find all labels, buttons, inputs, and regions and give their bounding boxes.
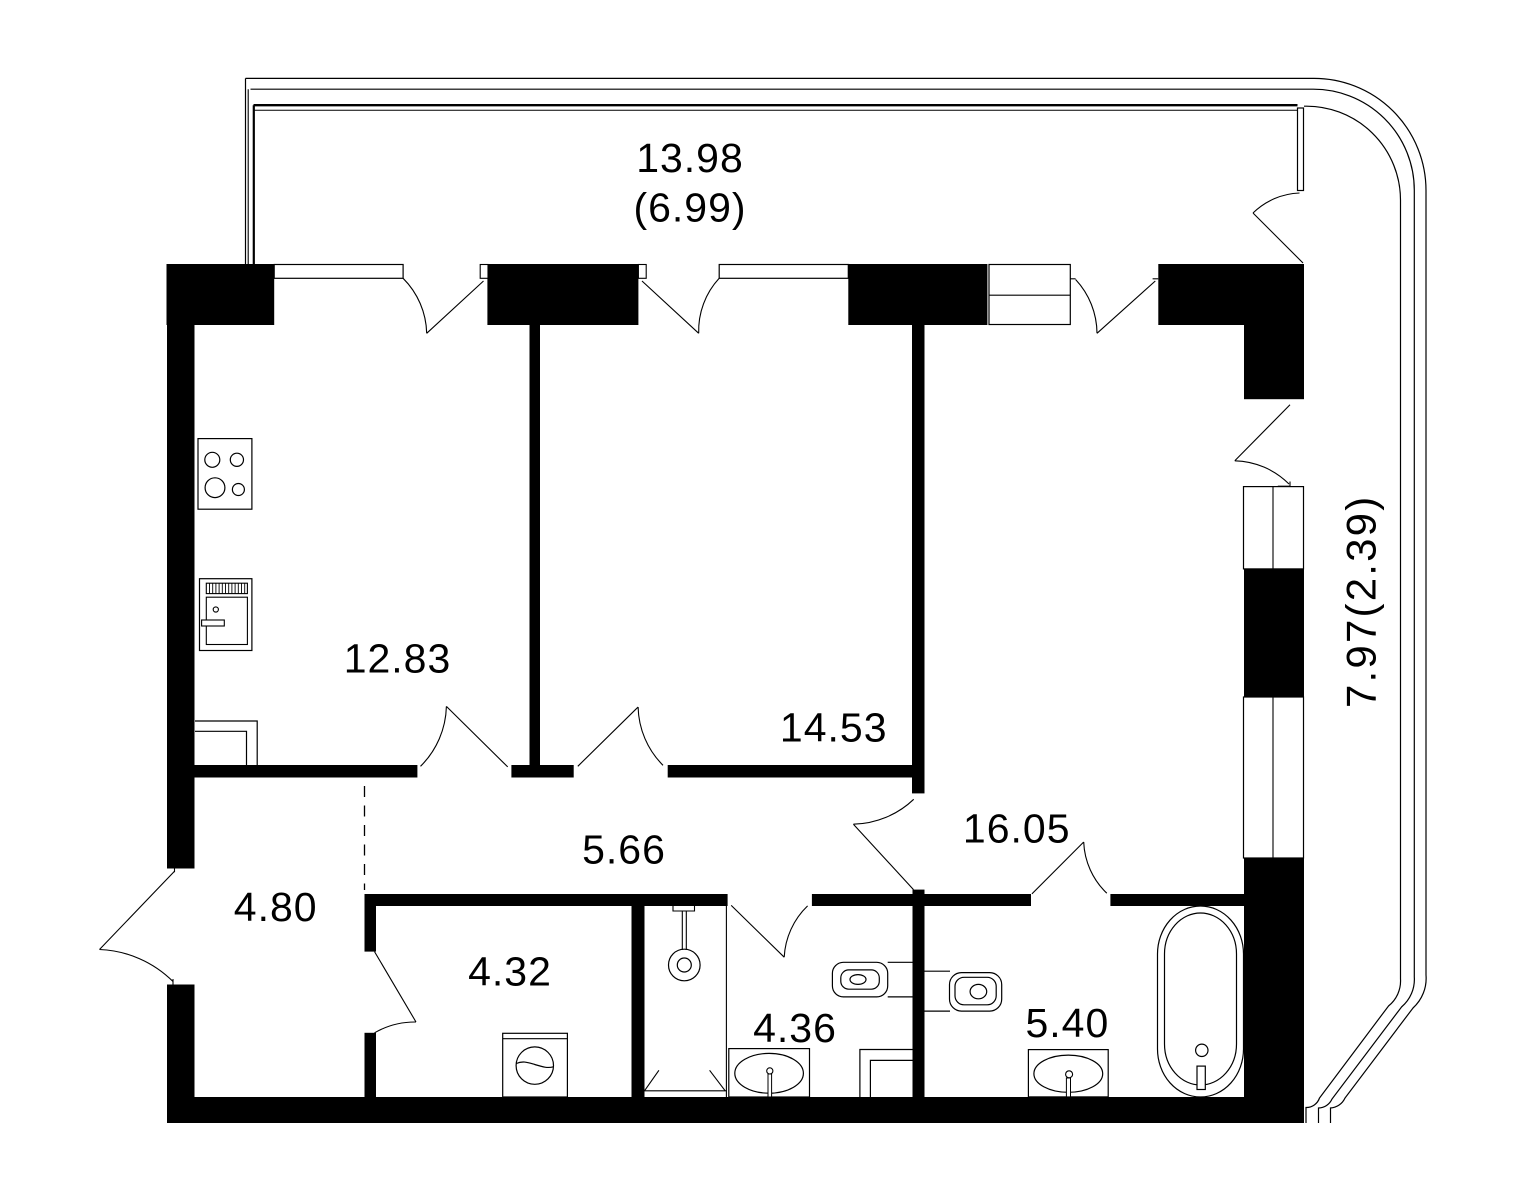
svg-text:5.40: 5.40 <box>1025 1000 1109 1046</box>
svg-text:5.66: 5.66 <box>582 827 666 873</box>
svg-text:4.80: 4.80 <box>234 884 318 930</box>
svg-text:14.53: 14.53 <box>780 704 888 750</box>
svg-text:4.32: 4.32 <box>468 949 552 995</box>
svg-text:4.36: 4.36 <box>753 1005 837 1051</box>
svg-text:7.97(2.39): 7.97(2.39) <box>1338 495 1385 708</box>
svg-text:16.05: 16.05 <box>963 805 1071 851</box>
svg-text:12.83: 12.83 <box>344 636 452 682</box>
svg-text:(6.99): (6.99) <box>633 185 746 231</box>
svg-text:13.98: 13.98 <box>636 135 744 181</box>
